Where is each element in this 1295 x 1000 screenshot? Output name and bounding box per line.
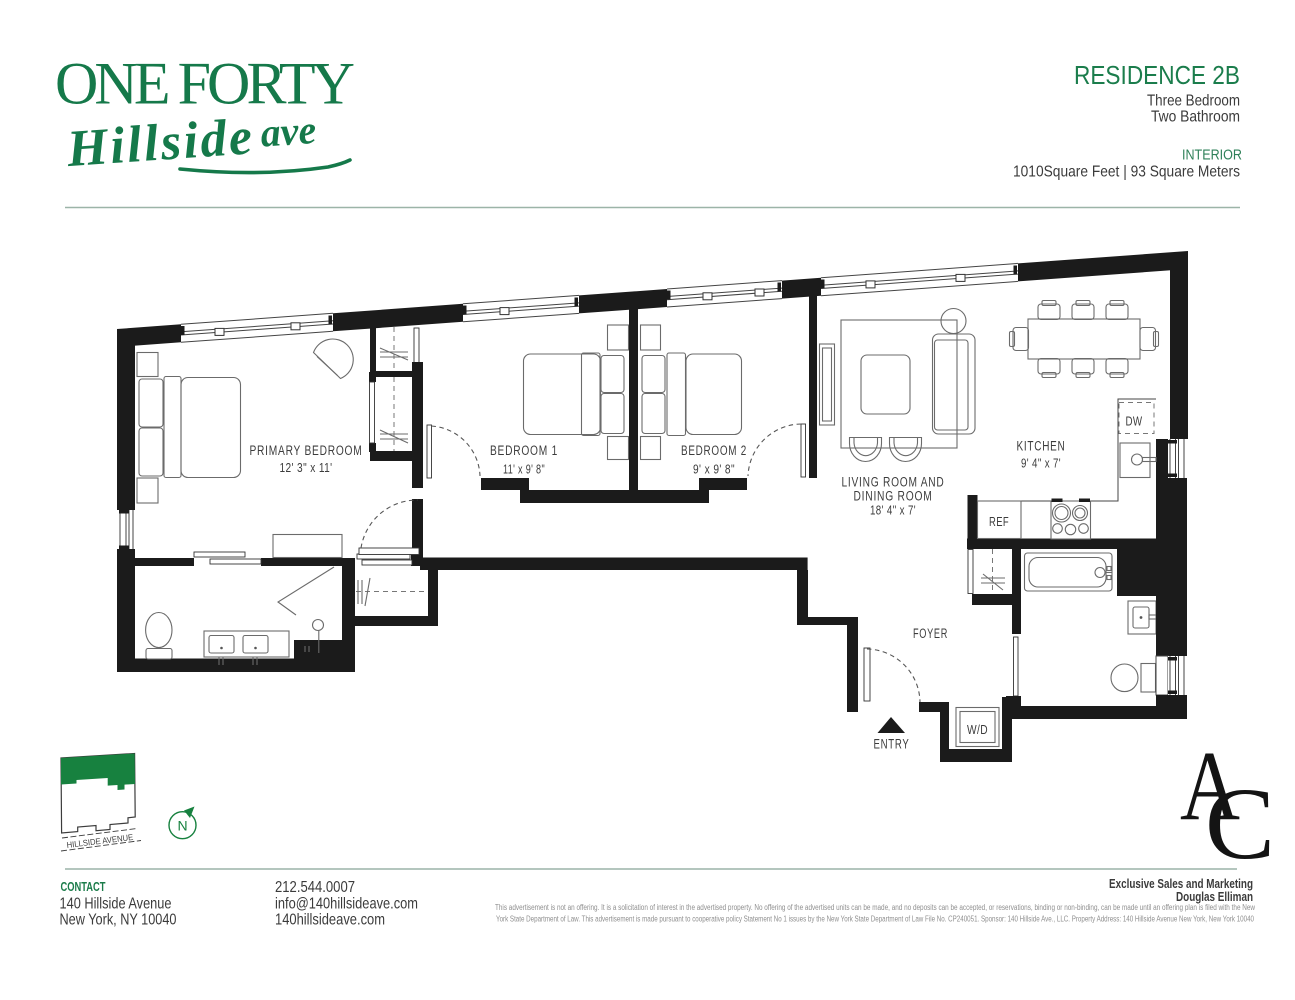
- svg-text:9' 4" x 7': 9' 4" x 7': [1021, 456, 1061, 471]
- svg-text:DW: DW: [1126, 414, 1143, 429]
- svg-text:18' 4" x 7': 18' 4" x 7': [870, 503, 916, 518]
- svg-text:info@140hillsideave.com: info@140hillsideave.com: [275, 896, 418, 913]
- svg-text:PRIMARY BEDROOM: PRIMARY BEDROOM: [250, 443, 363, 458]
- svg-text:12' 3" x 11': 12' 3" x 11': [280, 460, 333, 475]
- svg-text:This advertisement is not an o: This advertisement is not an offering. I…: [495, 903, 1255, 912]
- svg-text:RESIDENCE 2B: RESIDENCE 2B: [1074, 60, 1240, 90]
- svg-text:BEDROOM 1: BEDROOM 1: [490, 443, 558, 458]
- svg-text:KITCHEN: KITCHEN: [1017, 439, 1066, 454]
- svg-text:Two Bathroom: Two Bathroom: [1151, 109, 1240, 126]
- svg-text:ave: ave: [259, 107, 318, 156]
- svg-text:INTERIOR: INTERIOR: [1182, 147, 1242, 164]
- svg-text:140hillsideave.com: 140hillsideave.com: [275, 912, 385, 929]
- svg-text:140 Hillside Avenue: 140 Hillside Avenue: [60, 896, 172, 913]
- svg-text:Three Bedroom: Three Bedroom: [1147, 93, 1240, 110]
- svg-text:W/D: W/D: [967, 722, 988, 737]
- svg-text:1010Square Feet | 93 Square Me: 1010Square Feet | 93 Square Meters: [1013, 164, 1240, 181]
- svg-text:9' x 9' 8": 9' x 9' 8": [693, 462, 735, 477]
- svg-text:Douglas Elliman: Douglas Elliman: [1176, 890, 1253, 904]
- svg-text:212.544.0007: 212.544.0007: [275, 879, 355, 896]
- svg-text:FOYER: FOYER: [913, 626, 948, 641]
- svg-text:New York, NY 10040: New York, NY 10040: [60, 912, 177, 929]
- svg-text:CONTACT: CONTACT: [61, 880, 106, 894]
- svg-text:York State Department of Law.: York State Department of Law. This adver…: [496, 915, 1254, 924]
- svg-text:C: C: [1205, 767, 1275, 881]
- svg-text:LIVING ROOM AND: LIVING ROOM AND: [842, 475, 945, 490]
- svg-text:REF: REF: [989, 514, 1009, 529]
- svg-text:BEDROOM 2: BEDROOM 2: [681, 443, 747, 458]
- svg-text:ENTRY: ENTRY: [874, 737, 910, 752]
- svg-text:DINING ROOM: DINING ROOM: [854, 489, 933, 504]
- svg-text:11' x 9' 8": 11' x 9' 8": [503, 462, 545, 477]
- svg-text:N: N: [177, 818, 187, 834]
